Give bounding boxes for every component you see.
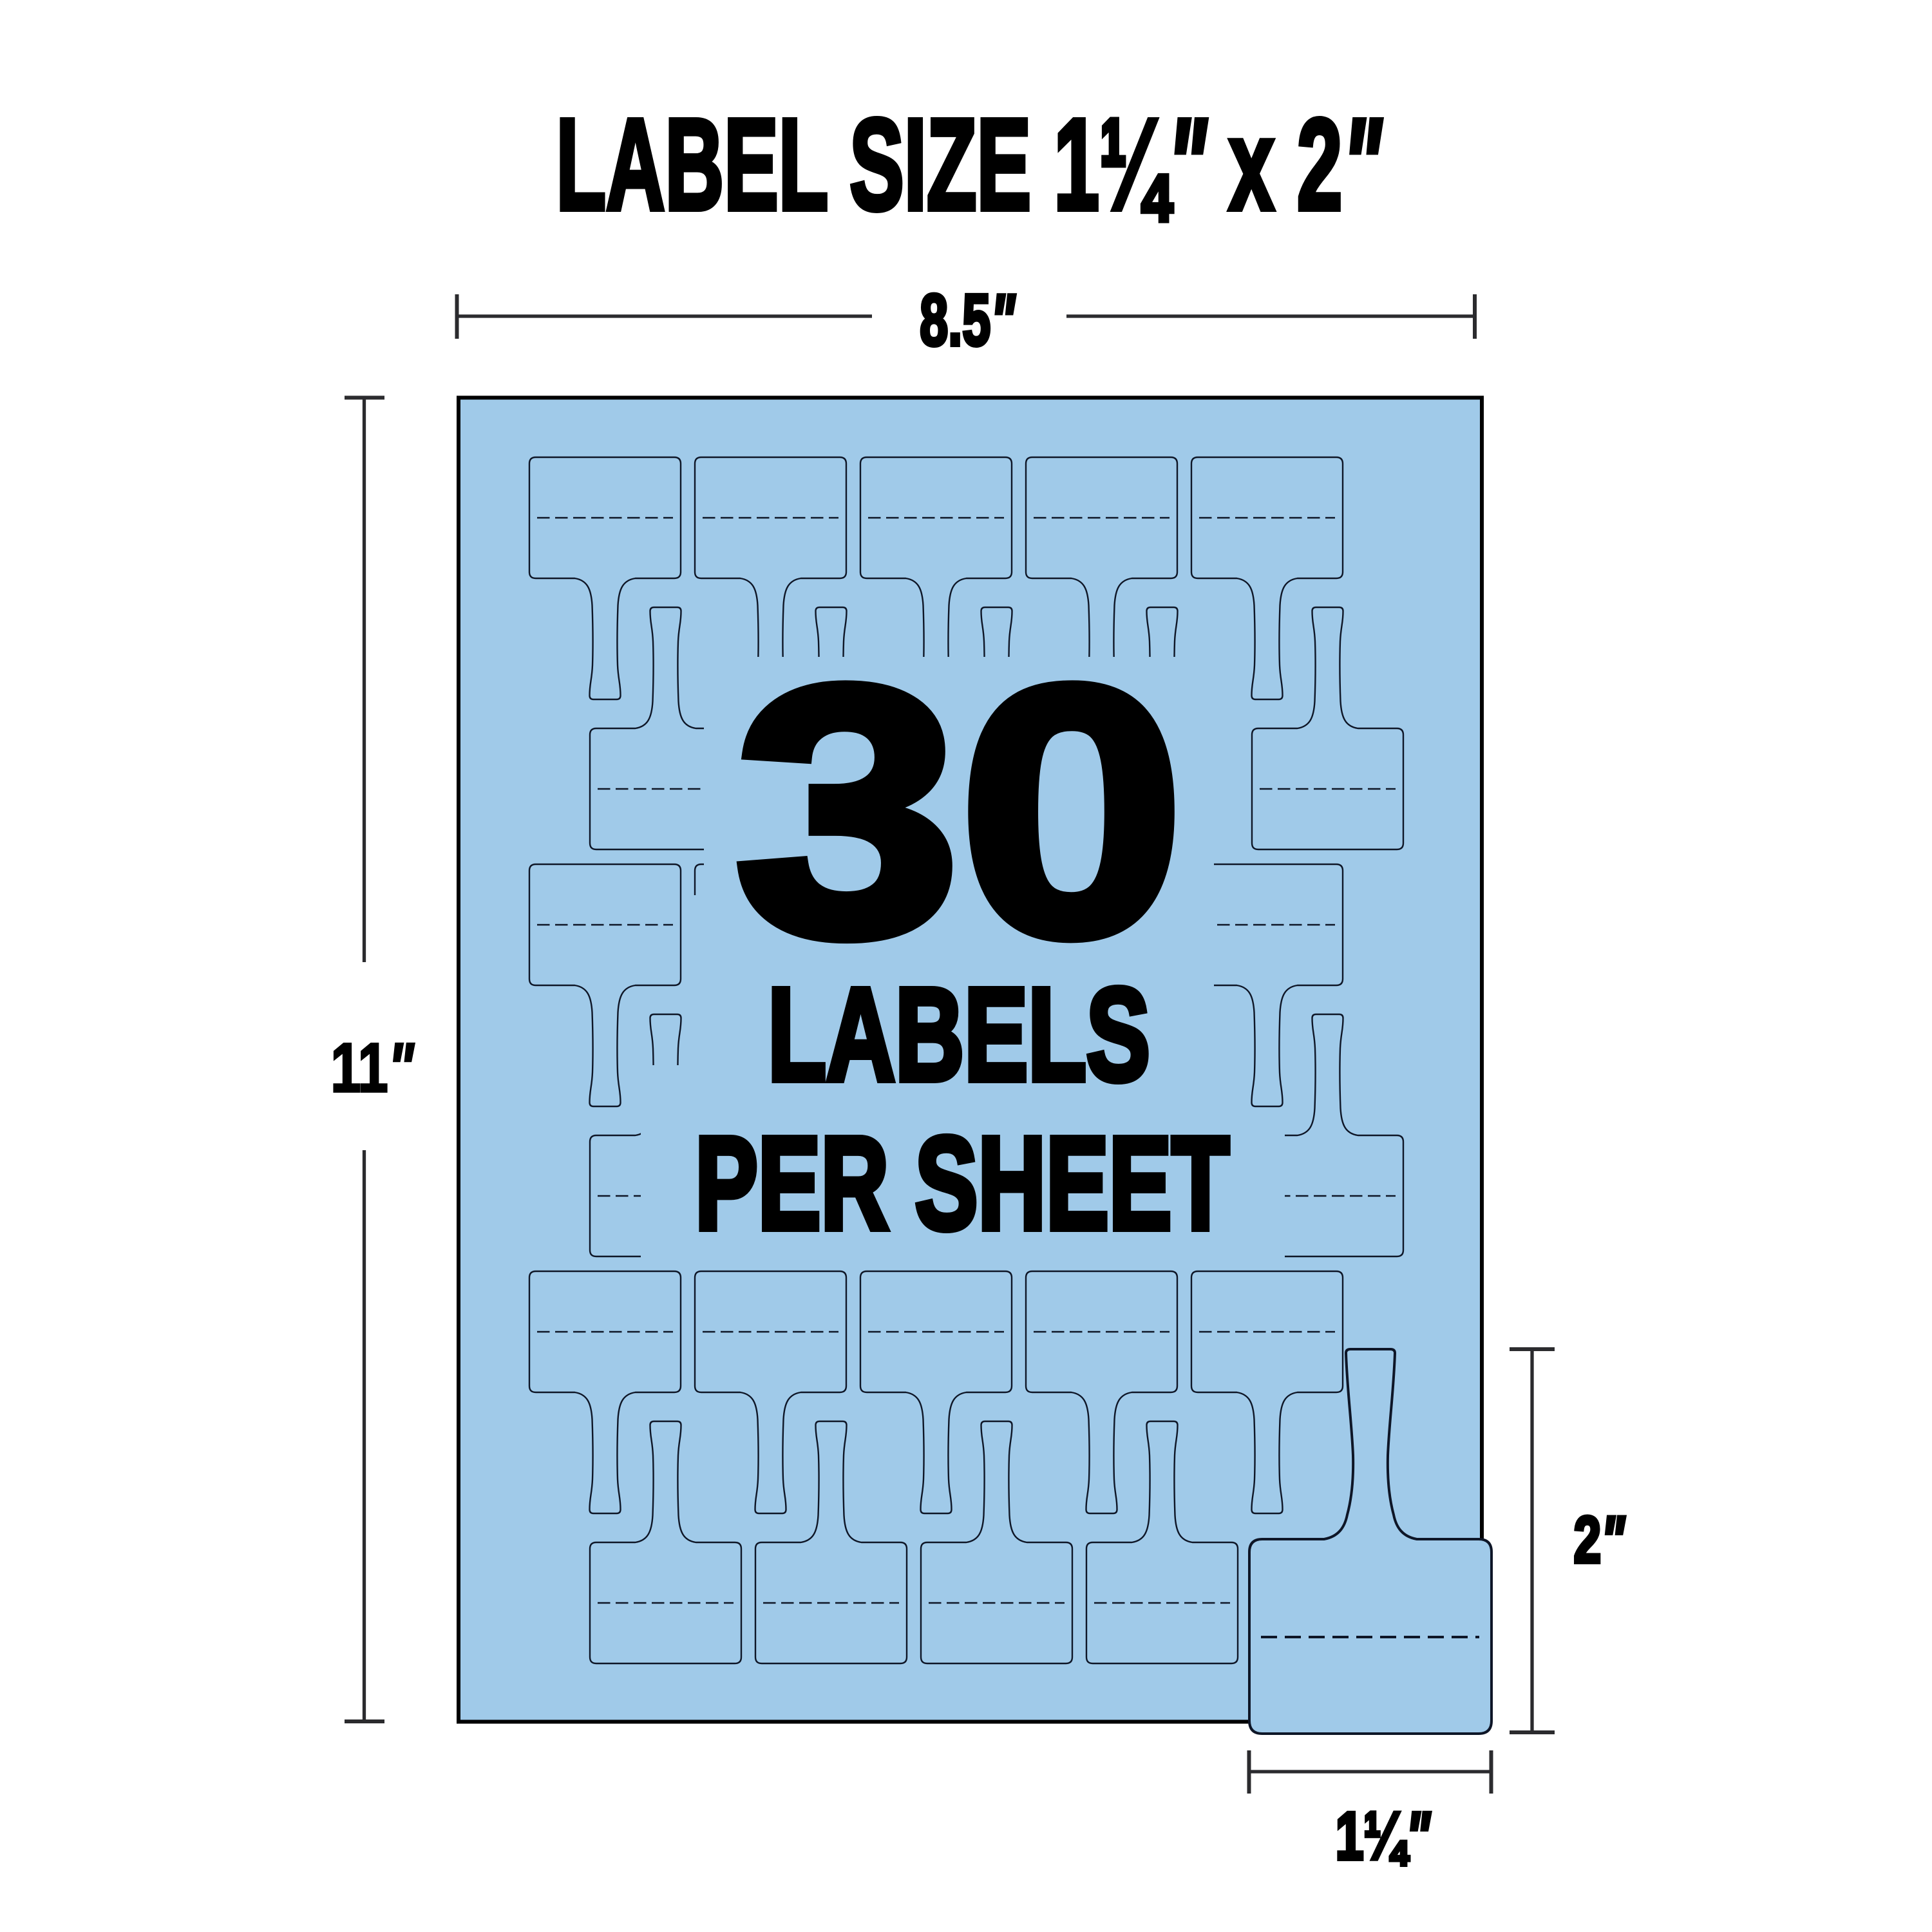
- svg-text:PER SHEET: PER SHEET: [695, 1110, 1229, 1257]
- svg-text:30: 30: [735, 614, 1184, 1008]
- svg-text:8.5": 8.5": [920, 279, 1016, 361]
- svg-text:1¼": 1¼": [1336, 1798, 1431, 1874]
- svg-text:2": 2": [1574, 1503, 1625, 1577]
- svg-text:LABEL SIZE 1¼" x 2": LABEL SIZE 1¼" x 2": [556, 91, 1382, 237]
- svg-text:11": 11": [330, 1028, 414, 1107]
- svg-text:LABELS: LABELS: [768, 960, 1150, 1108]
